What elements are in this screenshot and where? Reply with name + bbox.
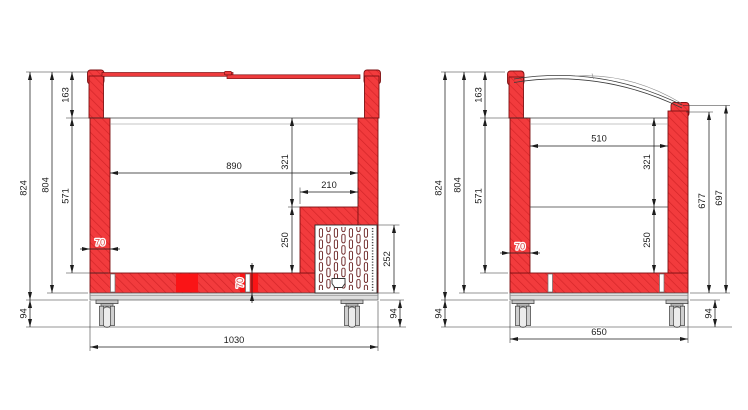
front-left-wall-lower (90, 118, 110, 273)
side-cabinet-body (508, 71, 690, 300)
side-curved-glass-pane-edge (575, 76, 681, 103)
dim-label: 677 (697, 193, 707, 209)
technical-drawing-page: 824 804 163 571 94 890 (0, 0, 748, 410)
side-base-plate (510, 293, 688, 300)
freezer-section-drawing: 824 804 163 571 94 890 (0, 0, 748, 410)
dim-label: 163 (474, 87, 484, 103)
dim-label: 804 (453, 177, 463, 193)
dim-side-inner-depth: 571 (474, 118, 486, 273)
dim-label: 250 (642, 232, 652, 248)
front-lid-handle (225, 71, 232, 75)
side-floor-bolt-left (548, 274, 553, 292)
dim-front-vent-panel-height: 252 (382, 225, 394, 293)
dim-label: 94 (704, 308, 714, 318)
dim-label: 252 (382, 251, 392, 267)
dim-side-inner-width: 510 (530, 134, 668, 147)
vent-plug-cutout (332, 279, 345, 288)
front-vent-grille (315, 225, 377, 293)
front-floor-solid-patch (176, 274, 198, 292)
dim-front-caster-height-right: 94 (389, 300, 401, 327)
side-section-view: 824 804 163 571 94 510 (434, 71, 733, 343)
dim-label-red: 70 (235, 278, 245, 288)
dim-label: 250 (280, 232, 290, 248)
dim-front-step-upper-depth: 321 (280, 118, 292, 207)
dim-label: 571 (474, 188, 484, 204)
dim-label: 890 (226, 161, 242, 171)
dim-front-inner-width: 890 (110, 161, 358, 173)
front-caster-left (96, 300, 118, 327)
dim-label: 210 (321, 180, 337, 190)
side-glass-joint (592, 74, 594, 80)
front-caster-right (341, 300, 363, 327)
dim-front-step-width: 210 (300, 180, 358, 192)
dim-label: 321 (280, 154, 290, 170)
dim-label-red: 70 (95, 238, 105, 248)
dim-front-body-height: 804 (41, 72, 53, 293)
dim-front-caster-height-left: 94 (19, 300, 31, 327)
dim-front-overall-width: 1030 (90, 335, 378, 347)
front-left-wall-upper (89, 76, 104, 118)
dim-label: 510 (591, 134, 607, 144)
side-caster-left (512, 300, 534, 327)
front-section-view: 824 804 163 571 94 890 (19, 70, 407, 351)
dim-side-lower-inner-depth: 250 (642, 207, 654, 273)
front-glass-lid-right-pane (227, 75, 360, 79)
dim-label: 824 (434, 180, 444, 196)
dim-side-rail-height: 697 (714, 106, 726, 294)
dim-label-red: 70 (515, 242, 525, 252)
side-floor-bolt-right (660, 274, 665, 292)
dim-label: 94 (19, 308, 29, 318)
dim-front-step-lower-depth: 250 (280, 207, 292, 273)
side-curved-glass-inner (514, 79, 682, 108)
dim-side-caster-height-right: 94 (704, 300, 716, 327)
dim-label: 321 (642, 154, 652, 170)
dim-side-wall-thickness: 70 (500, 242, 540, 254)
dim-side-overall-height: 824 (434, 72, 446, 300)
dim-side-overall-width: 650 (510, 327, 688, 339)
dim-front-wall-thickness: 70 (80, 238, 120, 250)
dim-front-overall-height: 824 (19, 72, 31, 300)
front-floor-bolt-left (111, 274, 116, 292)
dim-side-glass-edge-height: 677 (697, 112, 709, 293)
dim-label: 94 (389, 308, 399, 318)
dim-label: 697 (714, 190, 724, 206)
side-caster-right (666, 300, 688, 327)
front-glass-lid-left-pane (102, 73, 233, 77)
dim-label: 650 (591, 327, 607, 337)
dim-label: 571 (61, 188, 71, 204)
dim-front-lid-height: 163 (61, 72, 73, 118)
dim-front-inner-depth: 571 (61, 118, 73, 273)
side-left-wall-upper (509, 77, 524, 118)
dim-label: 1030 (224, 335, 245, 345)
dim-label: 94 (434, 308, 444, 318)
dim-side-body-height: 804 (453, 72, 465, 293)
dim-side-upper-inner-depth: 321 (642, 118, 654, 207)
dim-side-caster-height-left: 94 (434, 300, 446, 327)
dim-label: 163 (61, 87, 71, 103)
front-base-plate (90, 293, 378, 300)
side-right-wall (668, 111, 688, 273)
front-floor-bolt-right (246, 274, 251, 292)
front-right-wall-upper (365, 76, 380, 118)
dim-side-lid-height: 163 (474, 72, 486, 118)
dim-label: 824 (19, 180, 29, 196)
dim-label: 804 (41, 177, 51, 193)
